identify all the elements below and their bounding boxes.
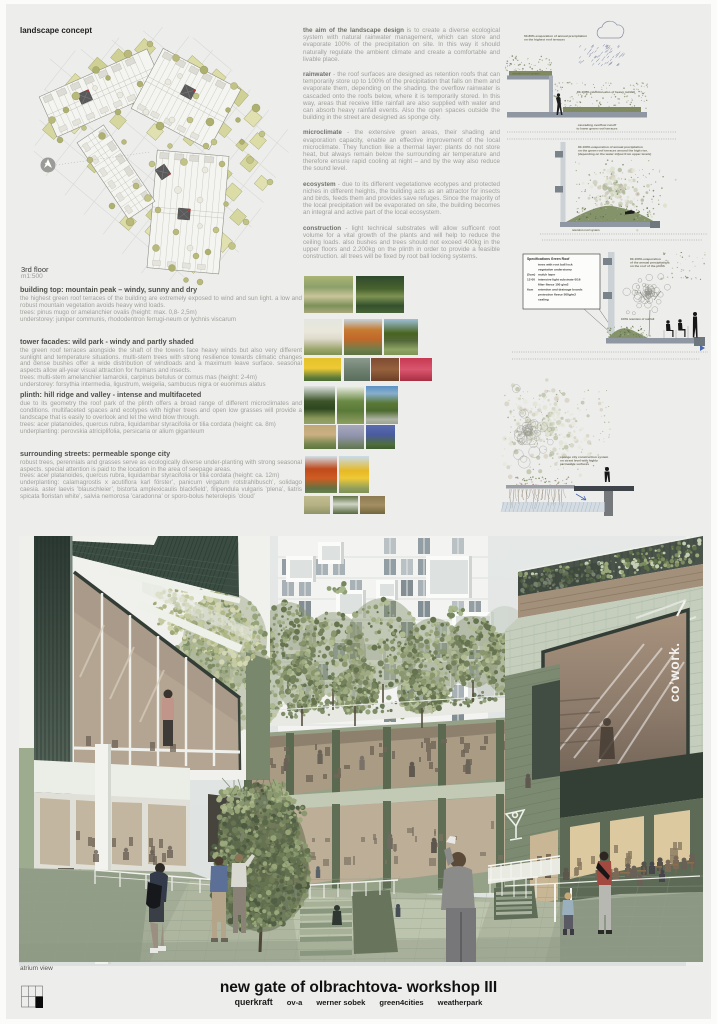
svg-text:cascading overflow runoffto lo: cascading overflow runoffto lower green … (577, 123, 618, 131)
svg-text:12-00: 12-00 (527, 278, 535, 282)
svg-text:retention roof system: retention roof system (572, 228, 600, 232)
svg-text:60-80% evaporation of annual p: 60-80% evaporation of annual precipitati… (524, 34, 587, 42)
svg-text:retention and drainage boards: retention and drainage boards (538, 288, 583, 292)
svg-text:sealing: sealing (538, 298, 549, 302)
svg-text:retention roof system: retention roof system (512, 72, 540, 76)
svg-text:intensive light substrate 0/16: intensive light substrate 0/16 (538, 278, 581, 282)
svg-text:trees with root ball lock: trees with root ball lock (538, 263, 573, 267)
svg-text:sponge city construction syste: sponge city construction systemon street… (560, 455, 609, 466)
svg-text:mulch layer: mulch layer (538, 273, 556, 277)
svg-text:protection fleece 500g/m2: protection fleece 500g/m2 (538, 293, 576, 297)
svg-text:(5cm): (5cm) (527, 273, 535, 277)
svg-text:6cm: 6cm (527, 288, 533, 292)
svg-text:80-100% evaporation of annual: 80-100% evaporation of annual precipitat… (578, 145, 651, 156)
svg-text:80-100% retention also of heav: 80-100% retention also of heavy rainfall (577, 90, 635, 94)
svg-text:filter fleece 100 g/m2: filter fleece 100 g/m2 (538, 283, 569, 287)
svg-text:co’work.: co’work. (667, 642, 682, 702)
svg-text:Specifications Green Roof: Specifications Green Roof (527, 257, 570, 261)
svg-text:vegetative understorey: vegetative understorey (538, 268, 572, 272)
svg-text:100% retention of rainfall: 100% retention of rainfall (621, 317, 654, 321)
